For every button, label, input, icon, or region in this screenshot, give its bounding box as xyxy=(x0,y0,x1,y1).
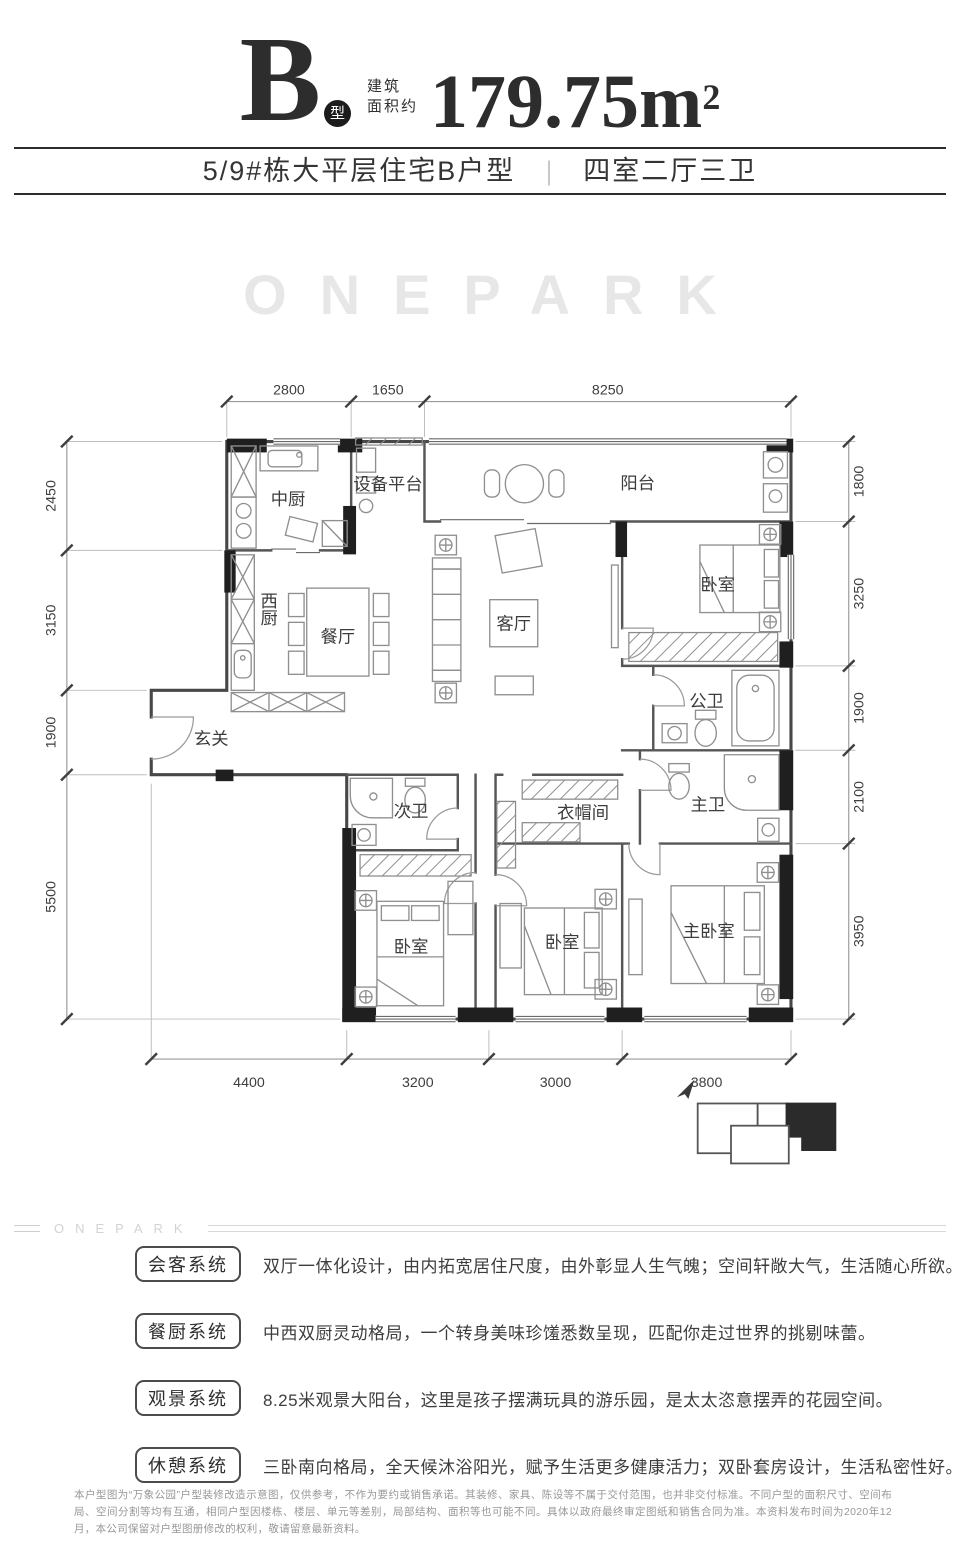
room-label-dining: 餐厅 xyxy=(321,626,356,646)
dim-bottom-1: 3200 xyxy=(402,1075,434,1091)
system-desc: 三卧南向格局，全天候沐浴阳光，赋予生活更多健康活力；双卧套房设计，生活私密性好。 xyxy=(263,1453,960,1478)
dim-right-0: 1800 xyxy=(851,466,867,498)
system-desc: 双厅一体化设计，由内拓宽居住尺度，由外彰显人生气魄；空间轩敞大气，生活随心所欲。 xyxy=(263,1252,960,1277)
room-label-master-bedroom: 主卧室 xyxy=(683,921,735,941)
room-label-closet: 衣帽间 xyxy=(557,802,609,822)
dim-left-1: 3150 xyxy=(44,604,60,636)
divider-line-top xyxy=(14,147,946,149)
dim-bottom-3: 3800 xyxy=(691,1075,723,1091)
system-row-reception: 会客系统 双厅一体化设计，由内拓宽居住尺度，由外彰显人生气魄；空间轩敞大气，生活… xyxy=(135,1246,930,1282)
area-number: 179.75m xyxy=(430,60,702,144)
disclaimer-text: 本户型图为“万象公园”户型装修改造示意图，仅供参考，不作为要约或销售承诺。其装修… xyxy=(74,1487,892,1538)
dim-top-1: 1650 xyxy=(372,382,404,398)
wardrobe-hatch xyxy=(360,633,778,876)
area-superscript: 2 xyxy=(702,77,720,117)
dim-bottom-2: 3000 xyxy=(540,1075,572,1091)
room-label-living: 客厅 xyxy=(496,613,531,633)
watermark-large: ONEPARK xyxy=(0,262,960,327)
dim-left-2: 1900 xyxy=(44,717,60,749)
dim-right-3: 2100 xyxy=(851,781,867,813)
room-label-xichu: 西厨 xyxy=(258,592,278,627)
watermark-dash xyxy=(14,1225,40,1232)
room-label-balcony: 阳台 xyxy=(620,473,655,493)
dim-right-2: 1900 xyxy=(851,692,867,724)
room-label-second-bath: 次卫 xyxy=(394,801,429,821)
dim-top-0: 2800 xyxy=(273,382,305,398)
watermark-small: ONEPARK xyxy=(54,1221,194,1236)
header: B 型 建筑 面积约 179.75m2 xyxy=(0,26,960,133)
systems-list: 会客系统 双厅一体化设计，由内拓宽居住尺度，由外彰显人生气魄；空间轩敞大气，生活… xyxy=(135,1246,930,1514)
system-desc: 中西双厨灵动格局，一个转身美味珍馐悉数呈现，匹配你走过世界的挑剔味蕾。 xyxy=(263,1319,876,1344)
system-row-view: 观景系统 8.25米观景大阳台，这里是孩子摆满玩具的游乐园，是太太恣意摆弄的花园… xyxy=(135,1380,930,1416)
system-tag: 会客系统 xyxy=(135,1246,241,1282)
dim-left-3: 5500 xyxy=(44,881,60,913)
floor-plan-svg: 2800 1650 8250 4400 3200 3000 3800 2450 … xyxy=(40,366,920,1179)
system-row-kitchen: 餐厨系统 中西双厨灵动格局，一个转身美味珍馐悉数呈现，匹配你走过世界的挑剔味蕾。 xyxy=(135,1313,930,1349)
unit-type-letter: B xyxy=(240,12,321,147)
dim-bottom-0: 4400 xyxy=(233,1075,265,1091)
room-label-entry: 玄关 xyxy=(194,729,229,749)
system-row-rest: 休憩系统 三卧南向格局，全天候沐浴阳光，赋予生活更多健康活力；双卧套房设计，生活… xyxy=(135,1447,930,1483)
room-label-master-bath: 主卫 xyxy=(691,794,726,814)
key-plan-highlight xyxy=(787,1103,836,1150)
area-prefix-line2: 面积约 xyxy=(367,97,418,117)
floor-plan-page: B 型 建筑 面积约 179.75m2 5/9#栋大平层住宅B户型 | 四室二厅… xyxy=(0,0,960,1549)
area-prefix-line1: 建筑 xyxy=(367,77,418,97)
system-tag: 观景系统 xyxy=(135,1380,241,1416)
system-desc: 8.25米观景大阳台，这里是孩子摆满玩具的游乐园，是太太恣意摆弄的花园空间。 xyxy=(263,1386,893,1411)
dim-right-1: 3250 xyxy=(851,578,867,610)
system-tag: 休憩系统 xyxy=(135,1447,241,1483)
dim-right-4: 3950 xyxy=(851,915,867,947)
dim-left-0: 2450 xyxy=(44,480,60,512)
unit-type-badge: 型 xyxy=(324,100,351,127)
watermark-row: ONEPARK xyxy=(14,1221,946,1236)
subtitle-right: 四室二厅三卫 xyxy=(583,156,757,186)
subtitle-divider: | xyxy=(547,151,552,191)
room-label-platform: 设备平台 xyxy=(353,474,422,494)
divider-line-bottom xyxy=(14,193,946,195)
room-label-zhongchu: 中厨 xyxy=(271,489,306,509)
dim-top-2: 8250 xyxy=(592,382,624,398)
room-label-bedroom-bl: 卧室 xyxy=(394,936,429,956)
area-value: 179.75m2 xyxy=(430,71,720,133)
watermark-line xyxy=(208,1225,946,1232)
room-label-public-bath: 公卫 xyxy=(689,691,724,711)
dimension-lines: 2800 1650 8250 4400 3200 3000 3800 2450 … xyxy=(44,382,868,1091)
floor-plan: 2800 1650 8250 4400 3200 3000 3800 2450 … xyxy=(0,366,960,1179)
subtitle-left: 5/9#栋大平层住宅B户型 xyxy=(203,156,516,186)
subtitle: 5/9#栋大平层住宅B户型 | 四室二厅三卫 xyxy=(0,151,960,193)
key-plan xyxy=(677,1079,836,1163)
room-label-bedroom-bm: 卧室 xyxy=(545,932,580,952)
room-label-bedroom-tr: 卧室 xyxy=(700,574,735,594)
system-tag: 餐厨系统 xyxy=(135,1313,241,1349)
unit-type: B 型 xyxy=(240,26,321,133)
area-prefix: 建筑 面积约 xyxy=(367,77,418,117)
